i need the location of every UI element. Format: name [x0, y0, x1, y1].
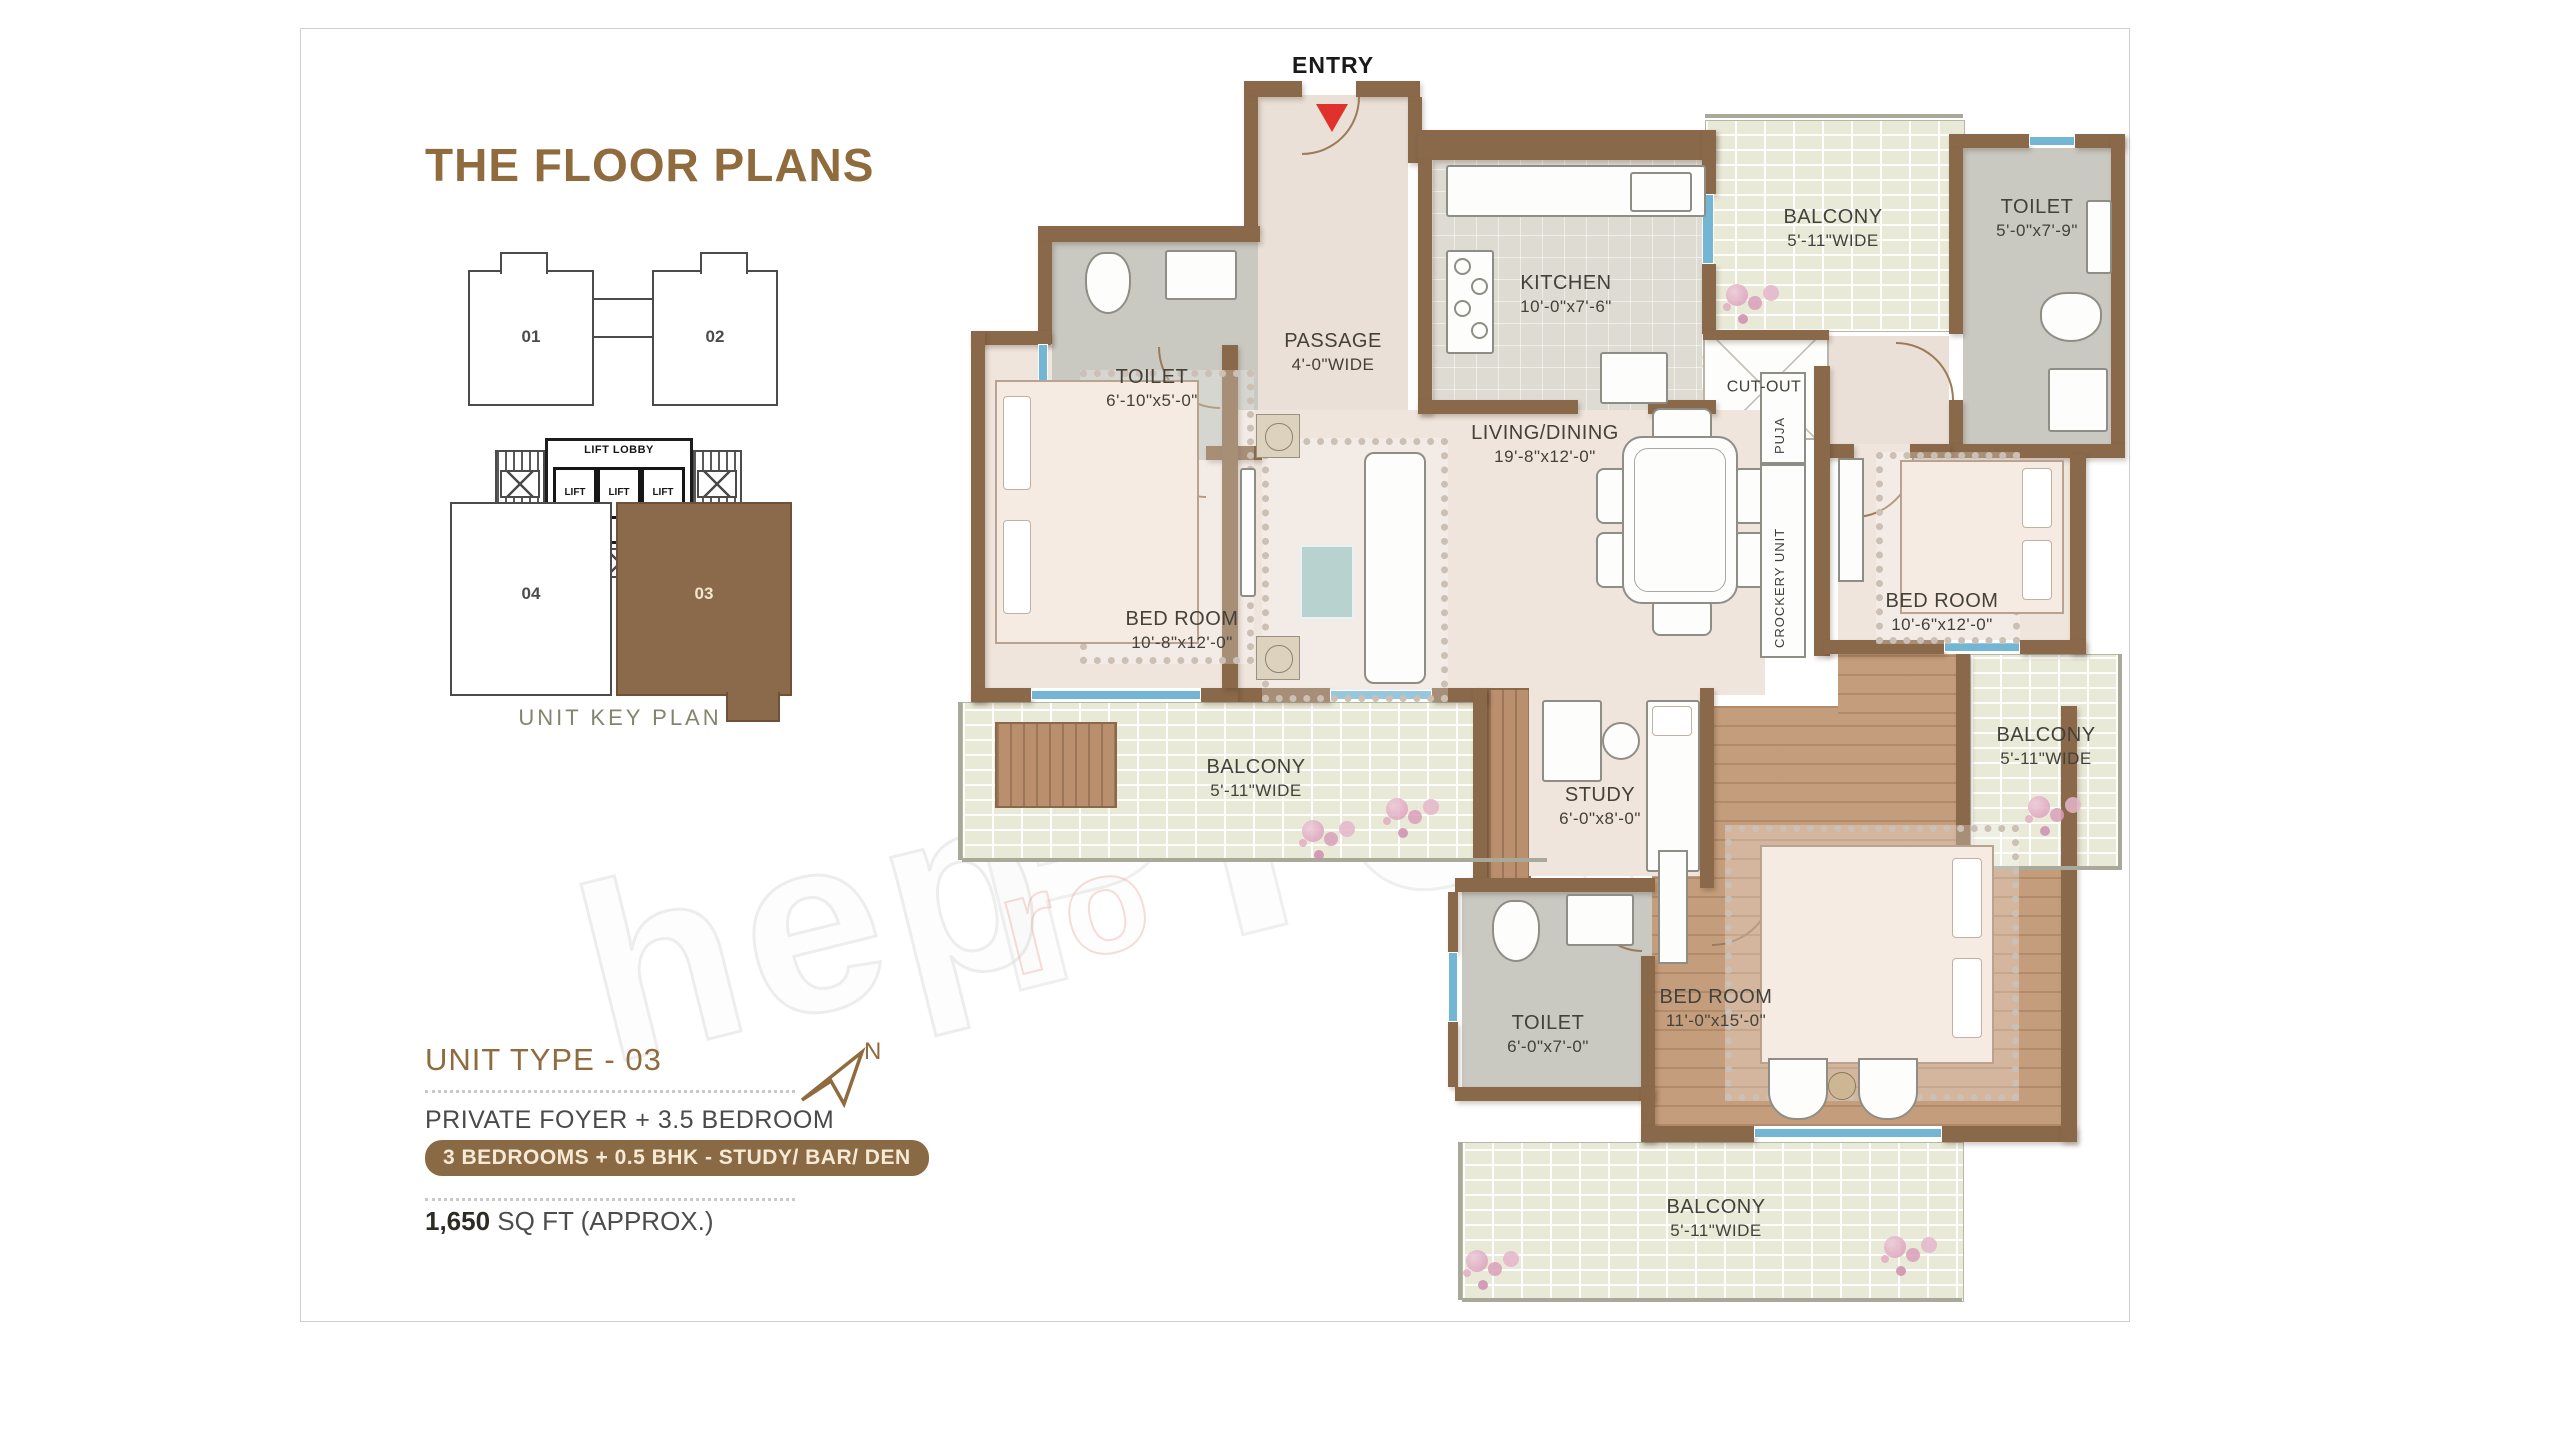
wall: [2111, 134, 2125, 444]
wood-deck: [995, 722, 1117, 808]
stool-icon: [1768, 1058, 1828, 1120]
window: [2029, 136, 2075, 146]
wall: [1702, 264, 1716, 334]
room-name: BALCONY: [1666, 1194, 1765, 1220]
area-value: 1,650: [425, 1206, 490, 1236]
wall: [1814, 366, 1830, 656]
balcony-edge: [2118, 654, 2122, 870]
wall: [971, 688, 1031, 702]
wall: [1356, 81, 1420, 97]
sink-icon: [2048, 368, 2108, 432]
room-name: BALCONY: [1206, 754, 1305, 780]
plant-icon: [1386, 798, 1408, 820]
burner-icon: [1471, 322, 1488, 339]
config-line: PRIVATE FOYER + 3.5 BEDROOM: [425, 1106, 834, 1135]
lift-lobby-label: LIFT LOBBY: [548, 444, 690, 456]
sink-icon: [1165, 250, 1237, 300]
desk-chair-icon: [1602, 722, 1640, 760]
wall: [2061, 706, 2077, 1142]
keyplan-lift-shaft: [697, 470, 737, 498]
plant-icon: [1302, 820, 1324, 842]
wall: [1038, 226, 1260, 242]
divider: [425, 1198, 795, 1201]
room-label-kitchen: KITCHEN 10'-0"x7'-6": [1520, 270, 1612, 318]
room-label-crockery-unit: CROCKERY UNIT: [1772, 478, 1787, 648]
wall: [1473, 688, 1487, 878]
coffee-table-icon: [1300, 545, 1354, 619]
balcony-edge: [1462, 1298, 1962, 1302]
wall: [1949, 148, 1963, 334]
burner-icon: [1471, 278, 1488, 295]
room-name: KITCHEN: [1520, 270, 1612, 296]
room-label-balcony-left: BALCONY 5'-11"WIDE: [1206, 754, 1305, 802]
wall: [1641, 956, 1655, 1087]
wall: [2070, 454, 2086, 654]
config-badge: 3 BEDROOMS + 0.5 BHK - STUDY/ BAR/ DEN: [425, 1140, 929, 1176]
lamp-table-icon: [1256, 414, 1300, 458]
room-name: BALCONY: [1783, 204, 1882, 230]
balcony-edge: [958, 702, 962, 860]
wall: [1448, 892, 1458, 952]
balcony-edge: [1458, 1142, 1462, 1300]
window: [1448, 952, 1458, 1022]
room-label-balcony-right: BALCONY 5'-11"WIDE: [1996, 722, 2095, 770]
room-label-bedroom-right: BED ROOM 10'-6"x12'-0": [1886, 588, 1999, 636]
room-name: PASSAGE: [1284, 328, 1382, 354]
room-label-toilet-top-left: TOILET 6'-10"x5'-0": [1106, 364, 1198, 412]
burner-icon: [1454, 258, 1471, 275]
divider: [425, 1090, 795, 1093]
room-dims: 5'-11"WIDE: [1996, 748, 2095, 770]
keyplan-unit-label: 01: [470, 327, 592, 347]
plant-icon: [1466, 1250, 1488, 1272]
stool-icon: [1858, 1058, 1918, 1120]
room-name: STUDY: [1559, 782, 1641, 808]
balcony-edge: [1705, 114, 1963, 118]
room-name: TOILET: [1507, 1010, 1589, 1036]
room-dims: 10'-6"x12'-0": [1886, 614, 1999, 636]
wardrobe-icon: [1838, 458, 1864, 582]
north-arrow-icon: [798, 1046, 868, 1108]
plant-icon: [1726, 284, 1748, 306]
room-name: TOILET: [1106, 364, 1198, 390]
wall: [1703, 330, 1829, 340]
room-label-passage: PASSAGE 4'-0"WIDE: [1284, 328, 1382, 376]
dining-table-icon: [1622, 436, 1738, 604]
pillow: [1652, 706, 1692, 736]
sink-icon: [1566, 894, 1634, 946]
keyplan-unit-label: 02: [654, 327, 776, 347]
area-suffix: SQ FT (APPROX.): [490, 1206, 713, 1236]
wall: [1418, 400, 1578, 414]
window: [1031, 690, 1201, 700]
wall: [1942, 1126, 2077, 1142]
wall: [1641, 1126, 1754, 1142]
keyplan-caption: UNIT KEY PLAN: [455, 705, 785, 731]
room-label-cut-out: CUT-OUT: [1727, 378, 1802, 399]
wall: [1455, 1087, 1655, 1101]
wall: [1244, 81, 1302, 97]
wall: [1949, 400, 1963, 444]
room-label-study: STUDY 6'-0"x8'-0": [1559, 782, 1641, 830]
room-name: LIVING/DINING: [1471, 420, 1619, 446]
wall: [1038, 242, 1052, 344]
room-dims: 5'-0"x7'-9": [1996, 220, 2078, 242]
fridge-icon: [1600, 352, 1668, 404]
area-line: 1,650 SQ FT (APPROX.): [425, 1206, 714, 1237]
keyplan-unit-04: 04: [450, 502, 612, 696]
room-name: CUT-OUT: [1727, 378, 1802, 399]
wall: [1949, 134, 2029, 148]
room-label-balcony-top: BALCONY 5'-11"WIDE: [1783, 204, 1882, 252]
keyplan-unit-label: 03: [618, 584, 790, 604]
entry-arrow-icon: [1316, 104, 1348, 132]
wood-passage-strip: [1487, 688, 1531, 880]
room-label-balcony-bottom: BALCONY 5'-11"WIDE: [1666, 1194, 1765, 1242]
wc-icon: [2040, 292, 2102, 342]
pillow: [2022, 540, 2052, 600]
wall: [1201, 688, 1238, 702]
room-dims: 10'-0"x7'-6": [1520, 296, 1612, 318]
desk-icon: [1542, 700, 1602, 782]
dresser-icon: [1658, 850, 1688, 964]
keyplan-unit-label: 04: [452, 584, 610, 604]
room-name: BED ROOM: [1886, 588, 1999, 614]
wall: [971, 331, 985, 702]
wall: [1455, 878, 1655, 892]
north-label: N: [864, 1038, 881, 1066]
room-name: BED ROOM: [1126, 606, 1239, 632]
kitchen-sink-icon: [1630, 172, 1692, 212]
floor-plan-page: hep Prop ro com THE FLOOR PLANS 01 02 LI…: [0, 0, 2560, 1440]
wc-icon: [1085, 252, 1131, 314]
keyplan-bridge: [592, 298, 654, 338]
page-title: THE FLOOR PLANS: [425, 138, 874, 192]
room-dims: 5'-11"WIDE: [1666, 1220, 1765, 1242]
unit-type-heading: UNIT TYPE - 03: [425, 1042, 662, 1078]
shelf-icon: [2086, 200, 2112, 274]
room-dims: 6'-10"x5'-0": [1106, 390, 1198, 412]
keyplan-unit-02: 02: [652, 270, 778, 406]
wall: [1700, 688, 1714, 888]
room-dims: 6'-0"x7'-0": [1507, 1036, 1589, 1058]
burner-icon: [1454, 300, 1471, 317]
room-label-bedroom-bottom: BED ROOM 11'-0"x15'-0": [1660, 984, 1773, 1032]
entry-label: ENTRY: [1292, 52, 1374, 79]
pillow: [1003, 520, 1031, 614]
room-label-puja: PUJA: [1772, 384, 1787, 454]
room-label-bedroom-left: BED ROOM 10'-8"x12'-0": [1126, 606, 1239, 654]
room-dims: 4'-0"WIDE: [1284, 354, 1382, 376]
wall: [1448, 1022, 1458, 1087]
wc-icon: [1492, 900, 1540, 962]
room-dims: 19'-8"x12'-0": [1471, 446, 1619, 468]
bedroom-bottom-floor: [1838, 654, 1956, 714]
room-label-toilet-top-right: TOILET 5'-0"x7'-9": [1996, 194, 2078, 242]
balcony-edge: [962, 858, 1547, 862]
room-name: TOILET: [1996, 194, 2078, 220]
room-dims: 10'-8"x12'-0": [1126, 632, 1239, 654]
pillow: [2022, 468, 2052, 528]
room-label-living-dining: LIVING/DINING 19'-8"x12'-0": [1471, 420, 1619, 468]
keyplan-unit-03-highlighted: 03: [616, 502, 792, 696]
room-dims: 11'-0"x15'-0": [1660, 1010, 1773, 1032]
wall: [1418, 160, 1432, 414]
plant-icon: [2028, 796, 2050, 818]
pillow: [1952, 958, 1982, 1038]
side-table-icon: [1828, 1072, 1856, 1100]
keyplan-lift-shaft: [500, 470, 540, 498]
wall: [1244, 97, 1258, 229]
room-dims: 5'-11"WIDE: [1783, 230, 1882, 252]
lamp-table-icon: [1256, 636, 1300, 680]
sofa-icon: [1364, 452, 1426, 684]
pillow: [1952, 858, 1982, 938]
room-name: BED ROOM: [1660, 984, 1773, 1010]
window: [1754, 1128, 1942, 1138]
pillow: [1003, 396, 1031, 490]
room-dims: 5'-11"WIDE: [1206, 780, 1305, 802]
room-dims: 6'-0"x8'-0": [1559, 808, 1641, 830]
tv-unit-icon: [1240, 468, 1256, 597]
room-label-toilet-bottom: TOILET 6'-0"x7'-0": [1507, 1010, 1589, 1058]
room-name: BALCONY: [1996, 722, 2095, 748]
plant-icon: [1884, 1236, 1906, 1258]
passage-floor: [1258, 95, 1408, 460]
wall: [1418, 130, 1716, 160]
wall: [2020, 640, 2086, 654]
keyplan-unit-01: 01: [468, 270, 594, 406]
